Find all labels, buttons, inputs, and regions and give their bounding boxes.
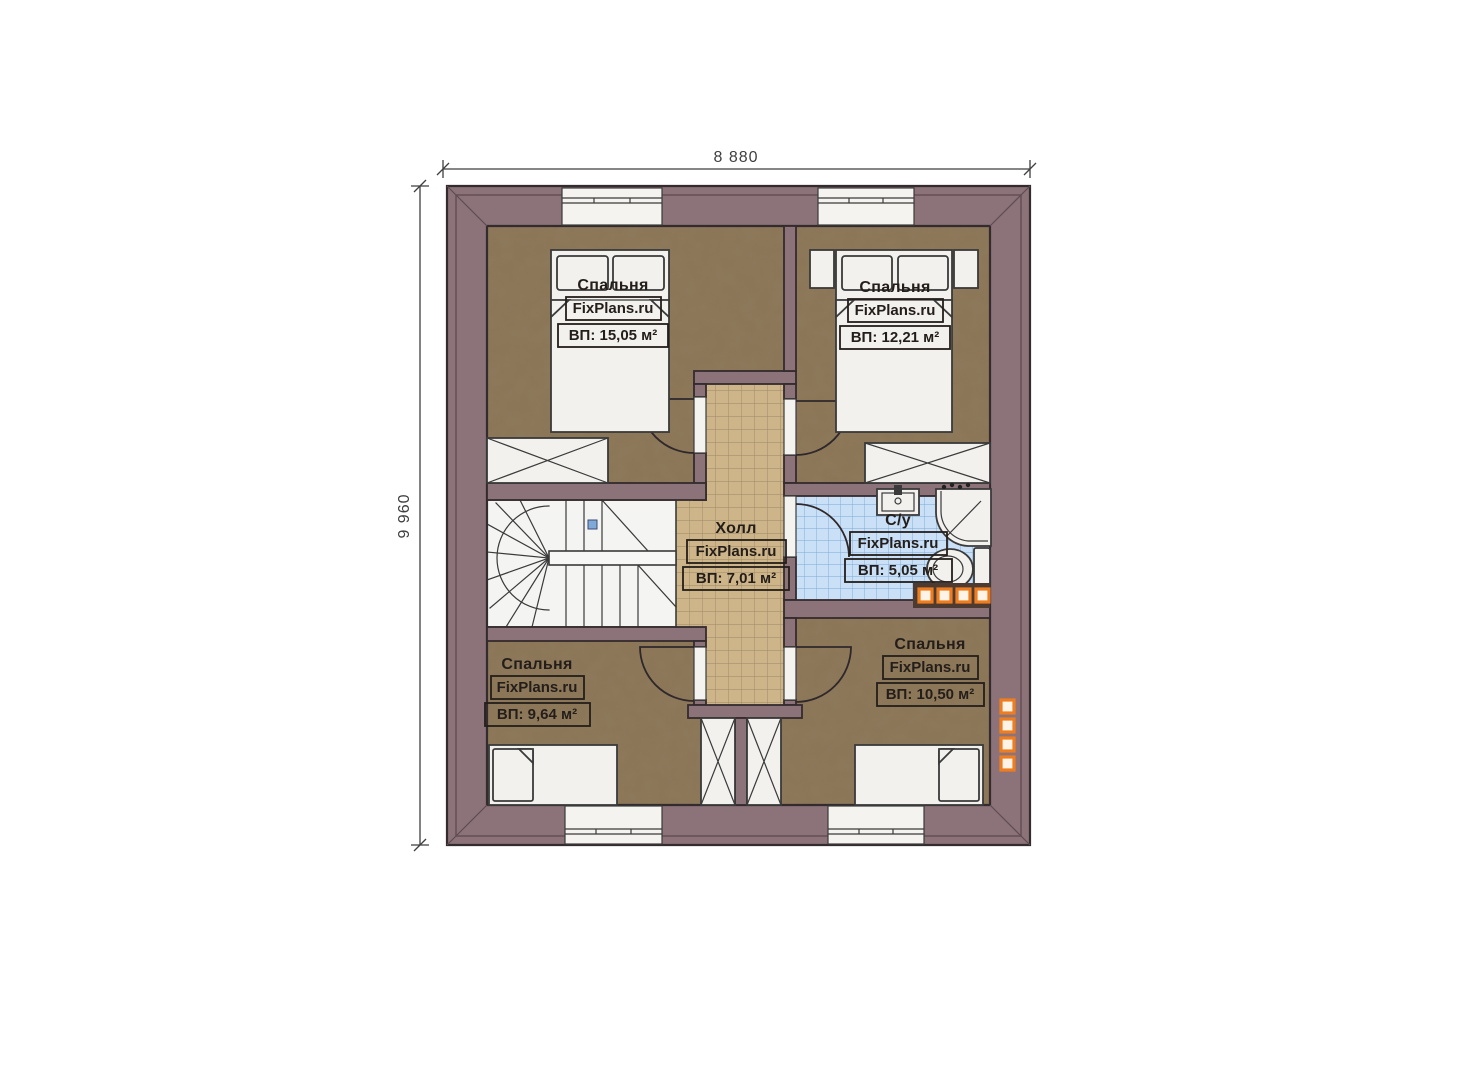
- closet: [865, 443, 990, 483]
- bed-single: [855, 745, 983, 805]
- stair-node-marker: [588, 520, 597, 529]
- area-label: ВП: 12,21 м²: [851, 329, 940, 346]
- floor-plan-drawing: Спальня FixPlans.ru ВП: 15,05 м² Спальня…: [0, 0, 1473, 1080]
- window: [565, 806, 662, 844]
- stair-landing-rail: [549, 551, 676, 565]
- room-name: Спальня: [577, 277, 648, 294]
- window: [818, 188, 914, 225]
- corridor-bottom-floor: [706, 627, 784, 705]
- wardrobe: [701, 718, 735, 805]
- room-name: Спальня: [501, 656, 572, 673]
- room-name: Спальня: [894, 636, 965, 653]
- corridor-top-floor: [706, 384, 784, 487]
- sink: [877, 485, 919, 515]
- watermark-label: FixPlans.ru: [890, 659, 971, 676]
- area-label: ВП: 15,05 м²: [569, 327, 658, 344]
- floor-plan-page: Спальня FixPlans.ru ВП: 15,05 м² Спальня…: [0, 0, 1473, 1080]
- staircase: [487, 500, 676, 627]
- watermark-label: FixPlans.ru: [858, 535, 939, 552]
- watermark-label: FixPlans.ru: [855, 302, 936, 319]
- wardrobe: [747, 718, 781, 805]
- watermark-label: FixPlans.ru: [497, 679, 578, 696]
- window: [828, 806, 924, 844]
- room-name: С/у: [885, 512, 911, 529]
- window: [562, 188, 662, 225]
- watermark-label: FixPlans.ru: [696, 543, 777, 560]
- area-label: ВП: 5,05 м²: [858, 562, 938, 579]
- dimension-width-label: 8 880: [713, 149, 758, 166]
- dimension-height-label: 9 960: [396, 493, 413, 538]
- bed-single: [489, 745, 617, 805]
- room-name: Спальня: [859, 279, 930, 296]
- area-label: ВП: 9,64 м²: [497, 706, 577, 723]
- watermark-label: FixPlans.ru: [573, 300, 654, 317]
- radiator: [913, 583, 990, 608]
- closet: [487, 438, 608, 483]
- area-label: ВП: 10,50 м²: [886, 686, 975, 703]
- nightstand: [810, 250, 834, 288]
- room-name: Холл: [715, 520, 756, 537]
- area-label: ВП: 7,01 м²: [696, 570, 776, 587]
- nightstand: [954, 250, 978, 288]
